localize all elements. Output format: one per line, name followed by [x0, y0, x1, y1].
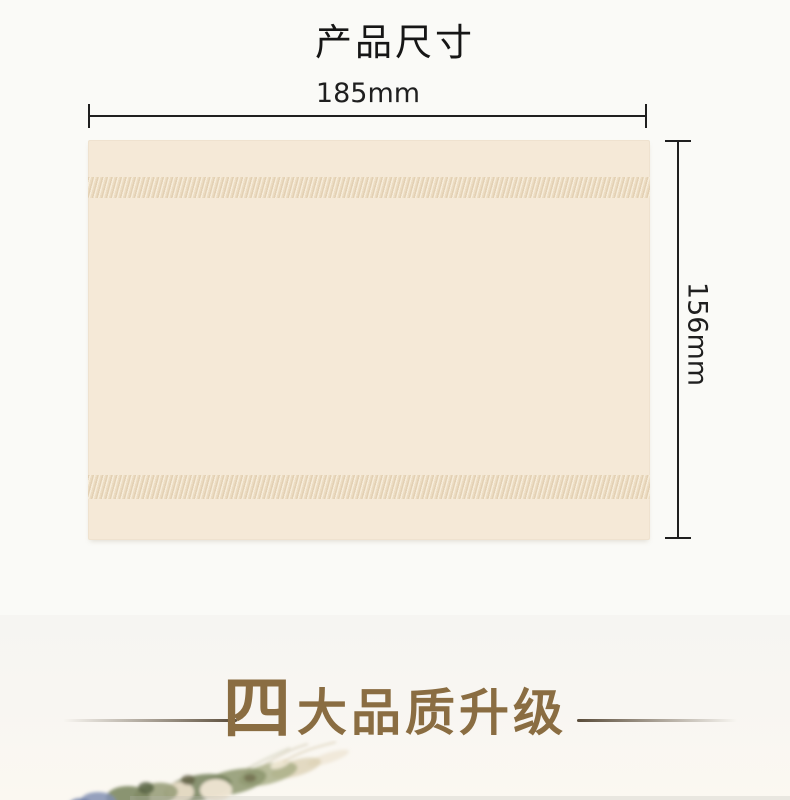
quality-title-number: 四 — [223, 678, 291, 741]
product-detail-page: 产品尺寸 185mm 156mm 四 大品质升级 — [0, 0, 790, 800]
width-dimension-tick-right — [645, 104, 647, 128]
tissue-emboss-band-top — [88, 177, 650, 198]
section-title-product-size: 产品尺寸 — [0, 12, 790, 66]
height-dimension-line — [677, 140, 679, 539]
tissue-emboss-band-bottom — [88, 475, 650, 499]
height-dimension-label: 156mm — [682, 282, 713, 386]
height-dimension-tick-top — [665, 140, 691, 142]
dried-flowers-image — [28, 740, 358, 800]
width-dimension-tick-left — [88, 104, 90, 128]
dried-flowers-illustration — [28, 740, 358, 800]
quality-title-text: 大品质升级 — [291, 688, 567, 741]
tissue-product-image — [88, 140, 650, 540]
quality-section-title: 四 大品质升级 — [0, 678, 790, 741]
bottom-edge-strip — [130, 796, 790, 800]
height-dimension-tick-bottom — [665, 537, 691, 539]
width-dimension-line — [89, 115, 647, 117]
width-dimension-label: 185mm — [89, 78, 647, 109]
